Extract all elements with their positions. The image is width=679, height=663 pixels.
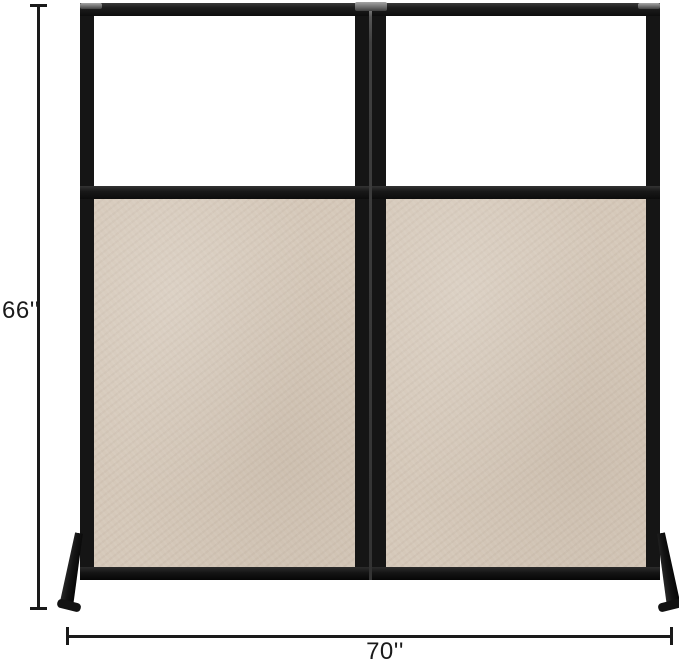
hinge-cap-center-icon bbox=[355, 2, 387, 11]
foot-left-pad bbox=[56, 598, 81, 613]
panel-left-fabric-panel bbox=[94, 199, 355, 567]
height-dimension-label: 66'' bbox=[2, 298, 46, 323]
width-dimension-cap-left bbox=[66, 627, 69, 645]
panel-left-mid-rail bbox=[80, 186, 369, 199]
height-dimension-cap-bottom bbox=[30, 607, 47, 610]
partition-panel-left bbox=[80, 3, 369, 580]
panel-right-top-rail bbox=[372, 3, 660, 16]
height-dimension-cap-top bbox=[30, 4, 47, 7]
width-dimension-cap-right bbox=[670, 627, 673, 645]
panel-right-clear-window bbox=[386, 16, 646, 186]
hinge-cap-left-icon bbox=[80, 3, 102, 9]
hinge-cap-right-icon bbox=[638, 3, 660, 9]
panel-left-top-rail bbox=[80, 3, 369, 16]
panel-right-fabric-panel bbox=[386, 199, 646, 567]
panel-left-bottom-rail bbox=[80, 567, 369, 580]
panel-left-clear-window bbox=[94, 16, 355, 186]
foot-right-pad bbox=[657, 598, 679, 613]
partition-panel-right bbox=[372, 3, 660, 580]
center-fold-seam bbox=[369, 3, 372, 580]
panel-right-mid-rail bbox=[372, 186, 660, 199]
product-dimension-diagram: 66'' 70'' bbox=[0, 0, 679, 663]
width-dimension-label: 70'' bbox=[335, 639, 435, 663]
panel-right-bottom-rail bbox=[372, 567, 660, 580]
